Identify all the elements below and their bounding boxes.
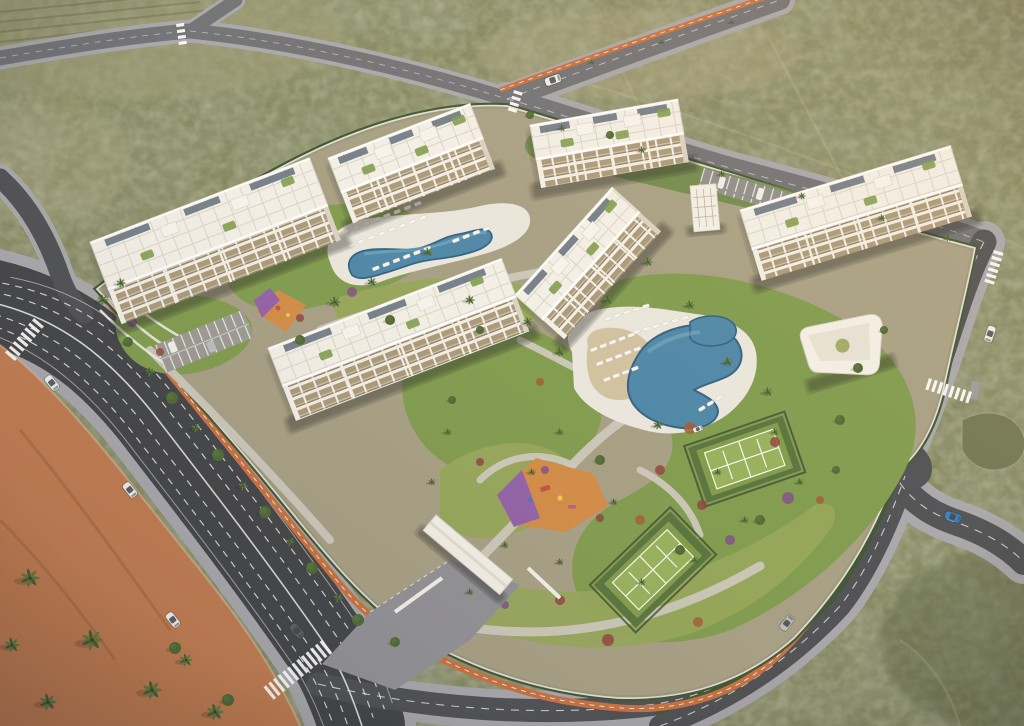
aerial-render-stage — [0, 0, 1024, 726]
vignette-overlay — [0, 0, 1024, 726]
aerial-render — [0, 0, 1024, 726]
